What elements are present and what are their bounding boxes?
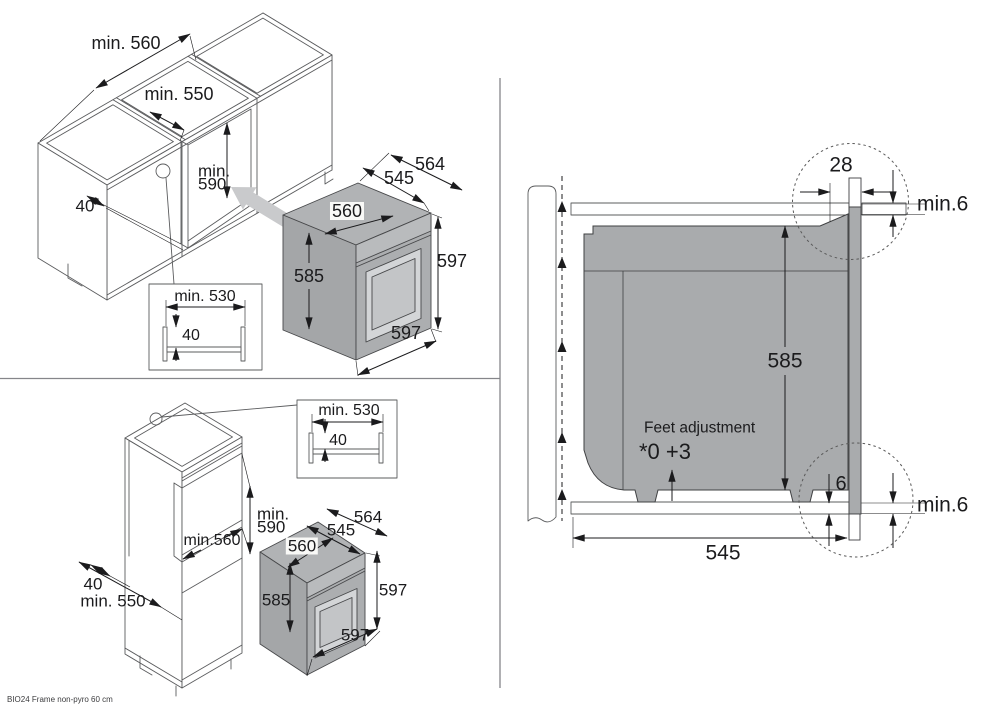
countertop-panel [571, 203, 849, 215]
oven-body-section [584, 214, 848, 502]
diagram-line-art [0, 0, 1000, 707]
oven-isometric-bottom [260, 522, 365, 675]
oven-isometric-top [283, 183, 431, 360]
bottom-shelf-panel [571, 502, 849, 514]
frame-bottom-tab [849, 514, 860, 540]
frame-strip [849, 207, 861, 514]
rail-detail-box-bottom [297, 400, 397, 478]
oven-installation-diagram: min. 560 min. 550 min. 590 40 min. 530 4… [0, 0, 1000, 707]
rail-detail-box-top [149, 284, 262, 370]
wall-panel [528, 186, 556, 522]
side-section-drawing [528, 176, 925, 540]
frame-top-tab [849, 178, 861, 207]
